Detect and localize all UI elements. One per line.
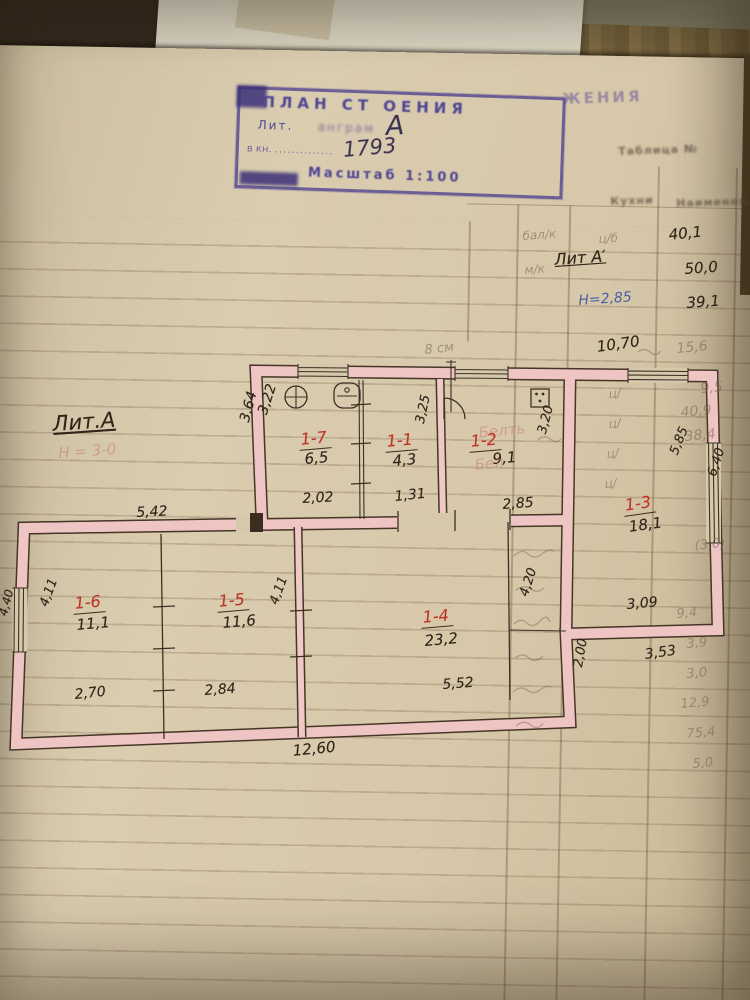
photographed-floor-plan-document: Таблица №КухниНаименов.бал/кц/б40,1м/кЛи…	[0, 0, 750, 1000]
dim-label: 5,42	[136, 504, 168, 520]
dim-label: 4,11	[38, 577, 60, 609]
cell-faint: (3,0)	[694, 537, 726, 553]
dim-label: 6,40	[706, 446, 727, 478]
dim-label: 3,09	[626, 595, 658, 612]
cell-faint: 5,0	[692, 756, 714, 771]
dim-label: 4,11	[268, 575, 290, 607]
dim-label: 4,40	[0, 588, 16, 617]
dim-label: 3,22	[256, 382, 279, 416]
cell-value: 40,1	[668, 225, 703, 243]
table-title: Таблица №	[618, 143, 698, 157]
cell-faint: 3,9	[686, 636, 708, 651]
cell-faint: ц/	[608, 417, 621, 430]
room-area: 18,1	[628, 515, 663, 535]
dim-label: 3,20	[536, 404, 556, 435]
cell-faint: ц/б	[598, 232, 618, 245]
cell-value: Н=2,85	[578, 290, 632, 308]
dim-label: 2,02	[302, 490, 334, 506]
height-annotation: Н = 3-0	[58, 442, 117, 461]
handwritten-labels: Таблица №КухниНаименов.бал/кц/б40,1м/кЛи…	[0, 0, 750, 1000]
cell-faint: 15,6	[676, 339, 708, 356]
cell-faint: 3,0	[686, 666, 708, 681]
cell-faint: 9,4	[676, 606, 698, 621]
cell-faint: ц/	[608, 387, 621, 400]
room-area: 6,5	[304, 450, 329, 467]
room-number: 1-4	[420, 607, 454, 629]
cell-faint: 75,4	[686, 725, 716, 740]
cell-faint: м/к	[524, 263, 545, 276]
dim-label: 2,84	[204, 682, 236, 698]
room-area: 23,2	[424, 631, 459, 649]
cell-faint: бал/к	[522, 228, 556, 242]
cell-value: Лит А′	[554, 248, 606, 268]
dim-label: 12,60	[292, 740, 336, 759]
cell-faint: 40,9	[680, 403, 712, 420]
dim-faint: 8 см	[424, 341, 455, 357]
dim-label: 5,85	[668, 425, 691, 457]
stamp-overflow: ЖЕНИЯ	[562, 89, 643, 107]
room-number: 1-3	[622, 494, 656, 517]
room-number: 1-5	[216, 591, 250, 613]
dim-label: 2,00	[572, 637, 590, 668]
dim-label: 2,70	[74, 685, 106, 702]
dim-label: 3,53	[644, 644, 677, 662]
room-area: 11,6	[222, 613, 257, 631]
dim-label: 5,52	[442, 676, 474, 692]
dim-label: 2,85	[502, 496, 534, 512]
cell-value: 39,1	[686, 294, 720, 311]
cell-faint: 12,9	[680, 695, 710, 710]
room-area: 4,3	[392, 452, 417, 469]
dim-label: 4,20	[518, 566, 539, 598]
cell-faint: 9,5	[700, 380, 723, 396]
cell-value: 50,0	[684, 260, 718, 277]
col-header-kitchens: Кухни	[610, 194, 654, 207]
col-header-name: Наименов.	[676, 195, 750, 209]
ghost-writing: Бел	[474, 455, 505, 473]
lit-annotation: Лит.А	[52, 410, 116, 435]
dim-label: 3,25	[414, 394, 433, 425]
room-number: 1-6	[72, 593, 106, 615]
room-area: 11,1	[76, 615, 111, 633]
dim-label: 1,31	[394, 487, 426, 504]
cell-faint: ц/	[604, 477, 617, 490]
cell-faint: ц/	[606, 447, 619, 460]
dim-label: 10,70	[596, 334, 641, 355]
